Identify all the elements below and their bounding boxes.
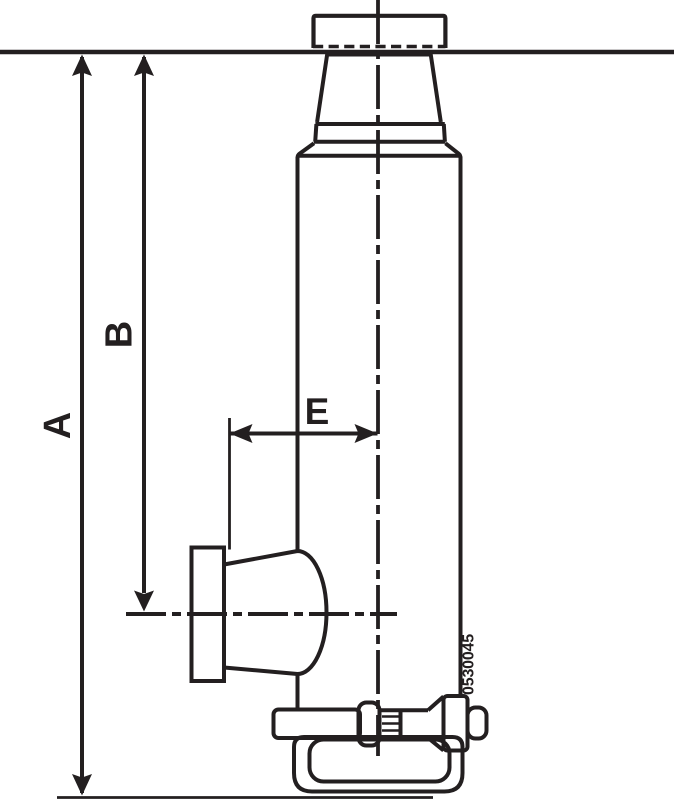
svg-text:0530045: 0530045 bbox=[460, 634, 477, 695]
svg-text:B: B bbox=[99, 321, 141, 348]
svg-text:A: A bbox=[37, 412, 79, 439]
svg-text:E: E bbox=[305, 391, 330, 432]
